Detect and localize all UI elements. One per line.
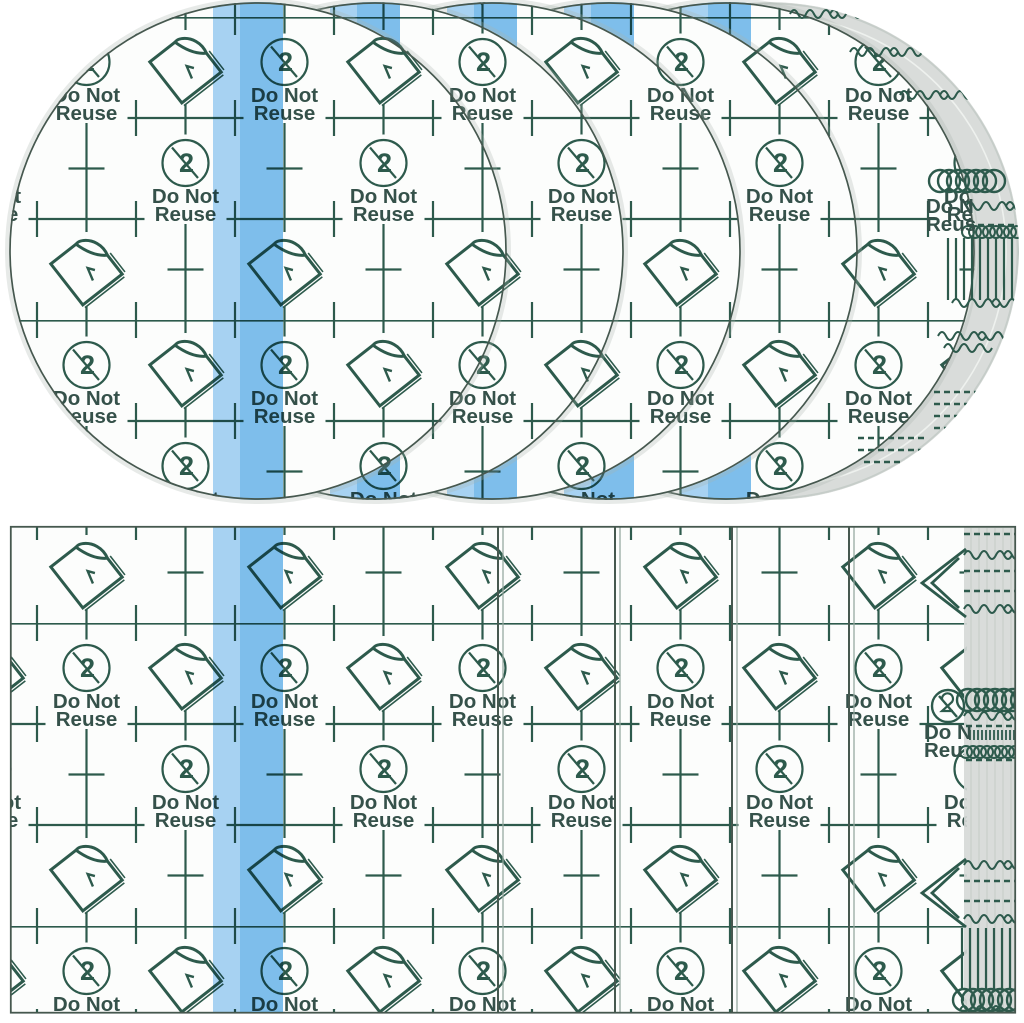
liner-stripe-circle-1 <box>213 0 283 504</box>
film-sheet-stack: Do N Reu <box>10 526 1024 1014</box>
liner-stripe-sheet-1 <box>213 526 283 1013</box>
product-photo: 2 Do Not Reuse <box>0 0 1024 1023</box>
edge-echo-label-line2: Reus <box>926 213 976 236</box>
bottom-stacked-edge-gray <box>964 526 1016 1013</box>
product-photo-canvas: 2 Do Not Reuse <box>0 0 1024 1023</box>
edge-echo-label-line2: Reu <box>924 739 963 762</box>
sheet-pattern-area <box>10 526 967 1013</box>
